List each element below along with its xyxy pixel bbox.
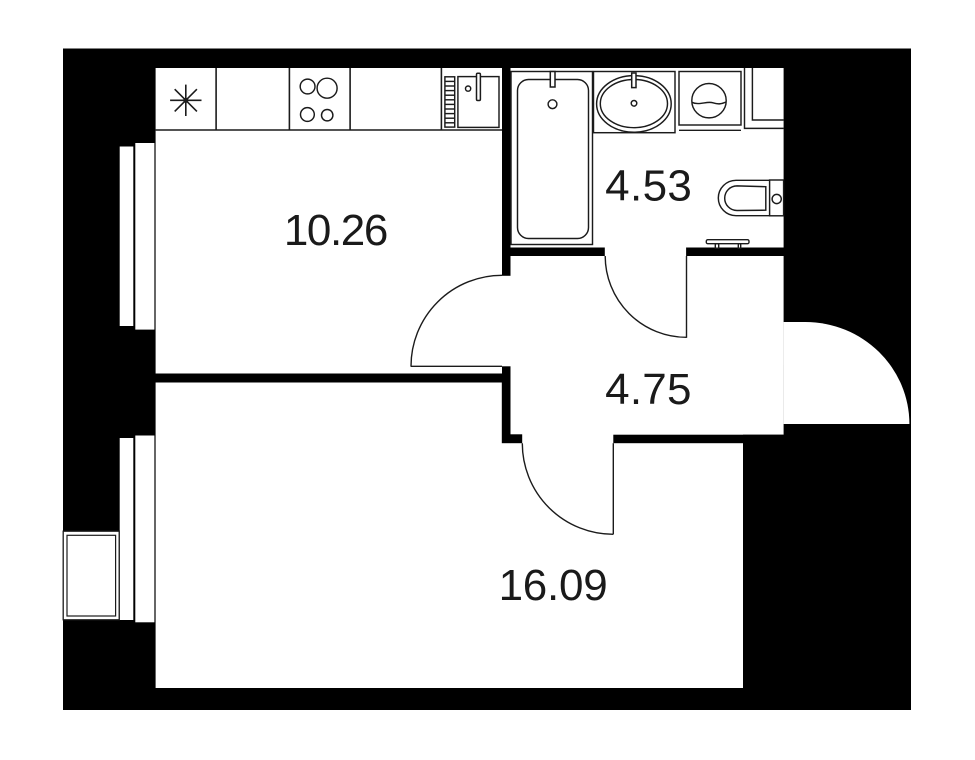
- svg-text:16.09: 16.09: [499, 561, 608, 610]
- svg-text:4.53: 4.53: [605, 161, 692, 210]
- svg-text:4.75: 4.75: [605, 365, 691, 414]
- svg-text:10.26: 10.26: [284, 206, 387, 255]
